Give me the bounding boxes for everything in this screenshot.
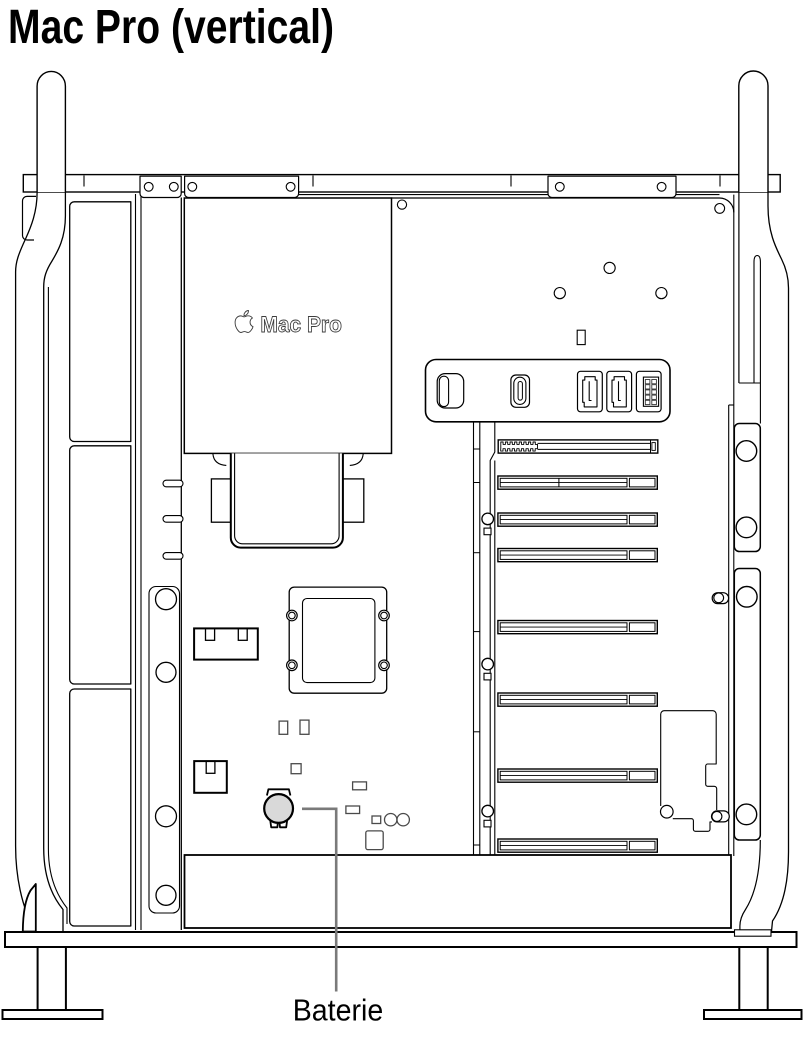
svg-text:Baterie: Baterie xyxy=(293,992,384,1027)
svg-text:Mac Pro (vertical): Mac Pro (vertical) xyxy=(8,1,334,54)
svg-text:Mac Pro: Mac Pro xyxy=(260,312,342,337)
